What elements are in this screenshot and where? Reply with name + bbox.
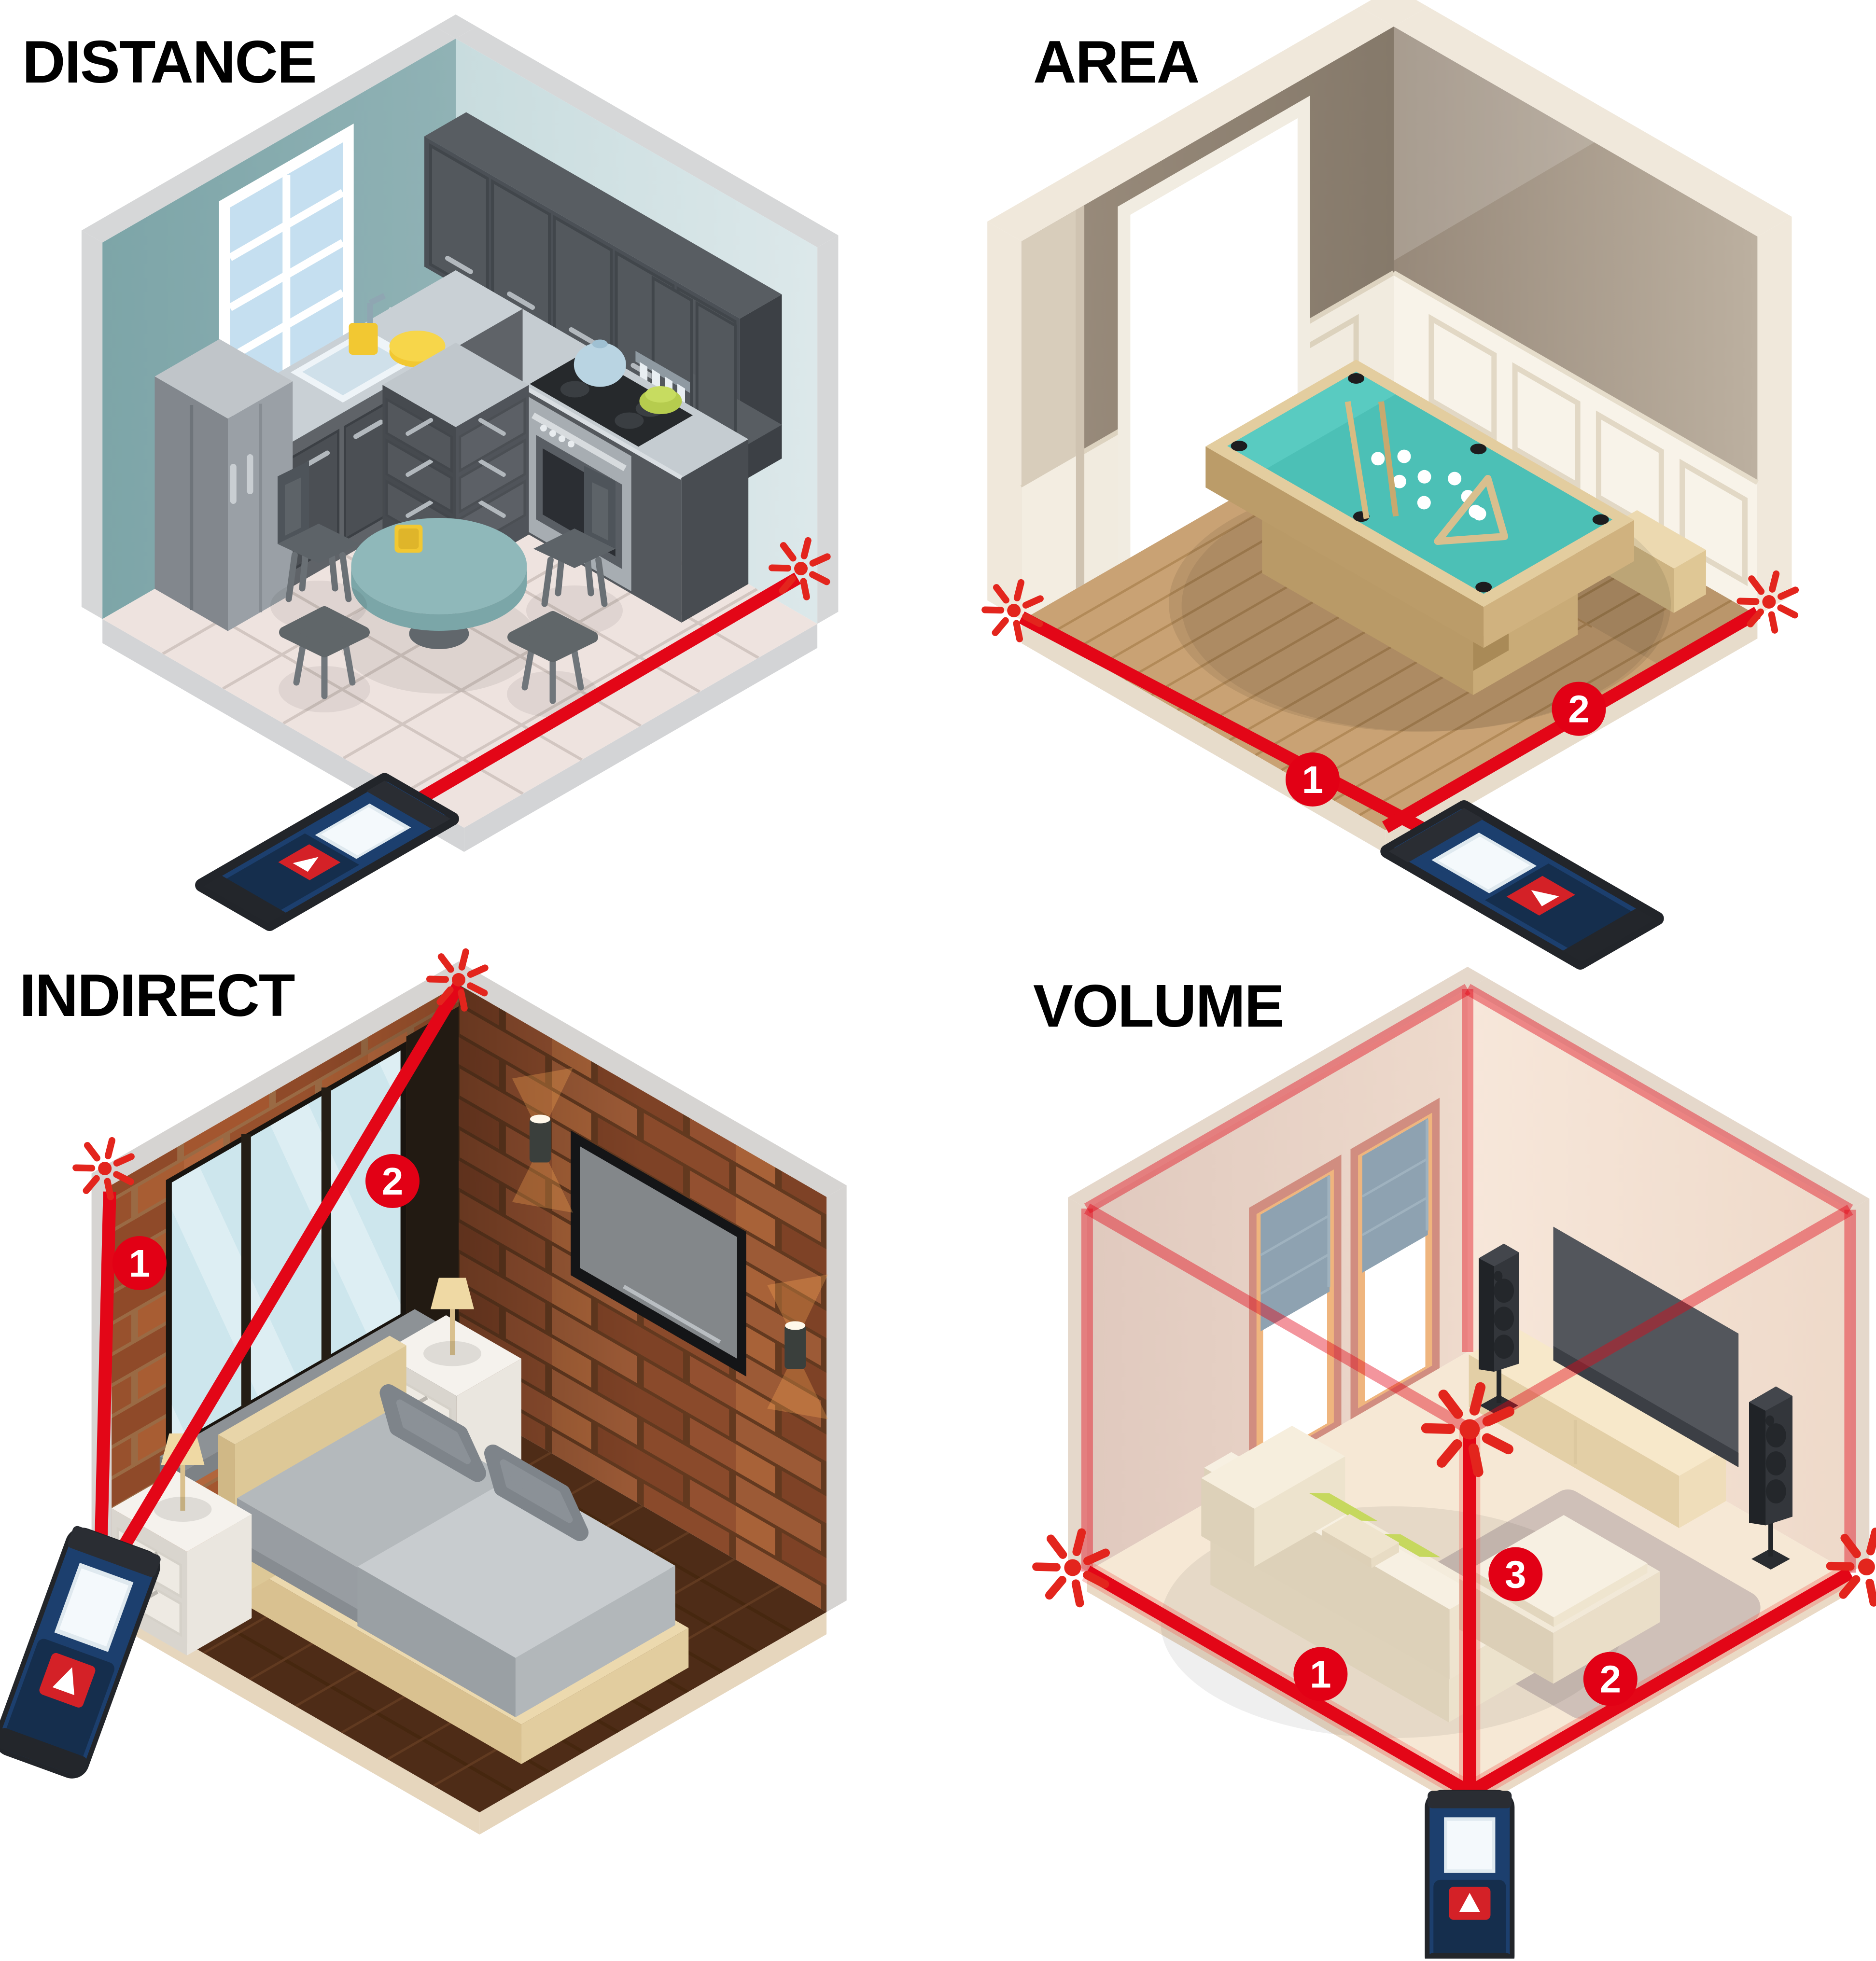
svg-text:AREA: AREA (1033, 29, 1199, 96)
svg-text:1: 1 (129, 1242, 151, 1285)
svg-text:1: 1 (1302, 758, 1324, 801)
svg-text:INDIRECT: INDIRECT (19, 962, 295, 1029)
svg-text:3: 3 (1505, 1553, 1526, 1596)
svg-text:2: 2 (382, 1160, 404, 1203)
svg-text:VOLUME: VOLUME (1033, 973, 1283, 1040)
svg-text:2: 2 (1600, 1658, 1622, 1701)
svg-text:1: 1 (1310, 1653, 1331, 1696)
svg-text:2: 2 (1568, 688, 1590, 731)
svg-text:DISTANCE: DISTANCE (22, 29, 316, 96)
